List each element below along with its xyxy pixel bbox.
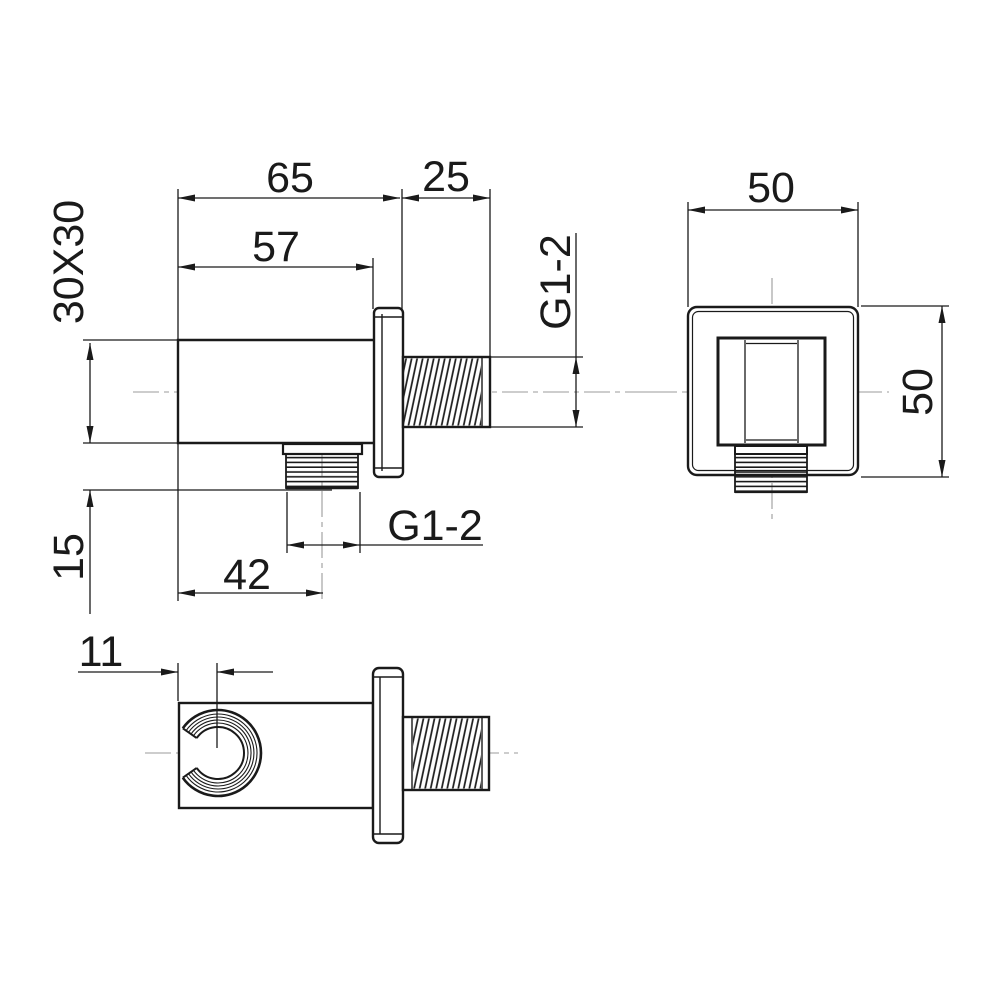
wall-thread-size-label: G1-2 [532,234,580,330]
outlet-thread-size-label: G1-2 [387,502,483,550]
body-boss-front [718,338,825,445]
wall-thread-bottom [403,717,489,790]
dim-outlet-offset-label: 42 [223,551,271,599]
wall-flange-side [374,308,403,477]
bottom-view: 11 [78,628,518,843]
outlet-thread-side [283,444,362,488]
shower-outlet-drawing: 65 57 25 30X30 15 42 G1-2 G1-2 [0,0,1000,1000]
wall-thread-side [403,357,490,427]
dim-outlet-drop-label: 15 [45,533,93,581]
dim-body-section-label: 30X30 [45,200,93,324]
dim-overall-depth-label: 65 [266,154,314,202]
dim-body-depth-label: 57 [252,223,300,271]
side-view: 65 57 25 30X30 15 42 G1-2 G1-2 [45,153,660,614]
dim-plate-height-label: 50 [894,368,942,416]
wall-flange-bottom [373,668,403,843]
outlet-thread-front [735,446,807,492]
dim-wall-thread-length-label: 25 [422,153,470,201]
front-view: 50 50 [651,164,949,521]
bottom-view-arrowheads [161,669,234,676]
body-outline-side [178,340,373,443]
dim-holder-offset-label: 11 [79,628,124,676]
technical-drawing-canvas: 65 57 25 30X30 15 42 G1-2 G1-2 [0,0,1000,1000]
dim-plate-width-label: 50 [747,164,795,212]
